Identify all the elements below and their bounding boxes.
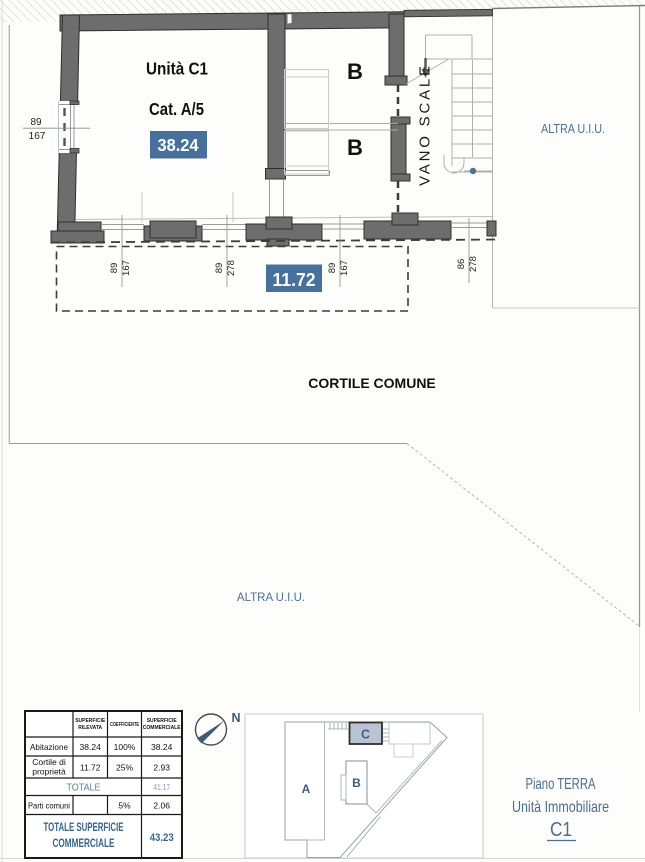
svg-text:TOTALE: TOTALE (67, 783, 101, 794)
svg-text:RILEVATA: RILEVATA (78, 725, 102, 731)
svg-text:278: 278 (226, 260, 237, 276)
svg-text:ALTRA U.I.U.: ALTRA U.I.U. (541, 122, 605, 136)
svg-text:25%: 25% (116, 763, 133, 773)
svg-text:Cortile di: Cortile di (32, 757, 66, 767)
svg-text:COMMERCIALE: COMMERCIALE (143, 725, 181, 731)
svg-text:89: 89 (109, 263, 120, 274)
svg-text:CORTILE COMUNE: CORTILE COMUNE (308, 375, 436, 391)
svg-text:11.72: 11.72 (80, 763, 101, 773)
svg-text:11.72: 11.72 (273, 269, 316, 290)
svg-text:C: C (361, 728, 370, 742)
svg-text:ALTRA U.I.U.: ALTRA U.I.U. (237, 592, 305, 604)
svg-text:2.93: 2.93 (153, 763, 170, 773)
svg-text:B: B (352, 776, 361, 790)
svg-text:proprietà: proprietà (32, 767, 66, 777)
svg-text:COEFFICIENTE: COEFFICIENTE (110, 722, 140, 728)
svg-text:B: B (347, 135, 363, 160)
svg-text:VANO SCALE: VANO SCALE (417, 63, 434, 186)
svg-text:41.17: 41.17 (153, 782, 170, 792)
svg-text:38.24: 38.24 (151, 742, 173, 752)
svg-text:B: B (347, 59, 363, 84)
svg-text:89: 89 (327, 263, 338, 274)
svg-text:TOTALE SUPERFICIE: TOTALE SUPERFICIE (44, 822, 124, 834)
svg-text:100%: 100% (114, 742, 136, 752)
svg-text:89: 89 (30, 117, 42, 128)
svg-text:38.24: 38.24 (158, 135, 199, 155)
svg-text:C1: C1 (550, 819, 572, 841)
svg-text:Cat. A/5: Cat. A/5 (149, 99, 204, 119)
svg-text:A: A (302, 782, 311, 796)
svg-text:2.06: 2.06 (153, 801, 170, 811)
svg-text:Parti comuni: Parti comuni (28, 801, 70, 811)
svg-text:Unità Immobiliare: Unità Immobiliare (512, 799, 609, 816)
svg-text:167: 167 (29, 131, 46, 142)
svg-text:86: 86 (456, 259, 467, 270)
svg-text:SUPERFICIE: SUPERFICIE (75, 718, 106, 724)
svg-text:167: 167 (121, 260, 132, 276)
svg-text:SUPERFICIE: SUPERFICIE (147, 718, 178, 724)
svg-text:167: 167 (339, 260, 350, 276)
svg-text:N: N (232, 711, 241, 725)
svg-text:89: 89 (214, 263, 225, 274)
svg-text:Piano TERRA: Piano TERRA (526, 776, 596, 793)
svg-text:COMMERCIALE: COMMERCIALE (53, 838, 115, 850)
svg-text:38.24: 38.24 (80, 742, 102, 752)
svg-text:278: 278 (468, 256, 479, 272)
svg-text:43.23: 43.23 (150, 832, 174, 844)
svg-text:Unità C1: Unità C1 (146, 59, 208, 79)
svg-text:Abitazione: Abitazione (30, 742, 68, 752)
svg-text:5%: 5% (118, 801, 131, 811)
